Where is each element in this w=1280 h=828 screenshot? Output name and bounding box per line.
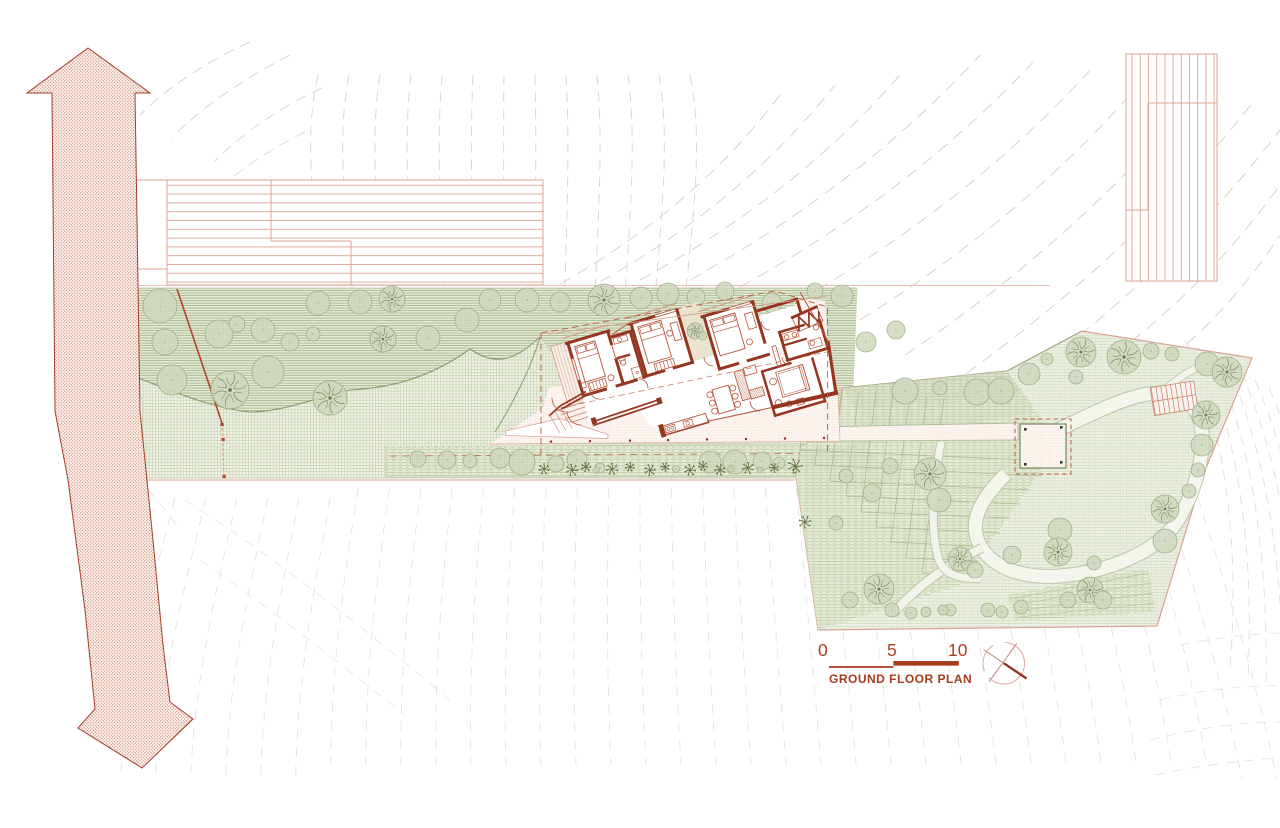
svg-text:5: 5: [887, 640, 897, 660]
svg-text:10: 10: [948, 640, 968, 660]
svg-text:0: 0: [818, 640, 828, 660]
svg-text:GROUND FLOOR PLAN: GROUND FLOOR PLAN: [829, 672, 972, 686]
